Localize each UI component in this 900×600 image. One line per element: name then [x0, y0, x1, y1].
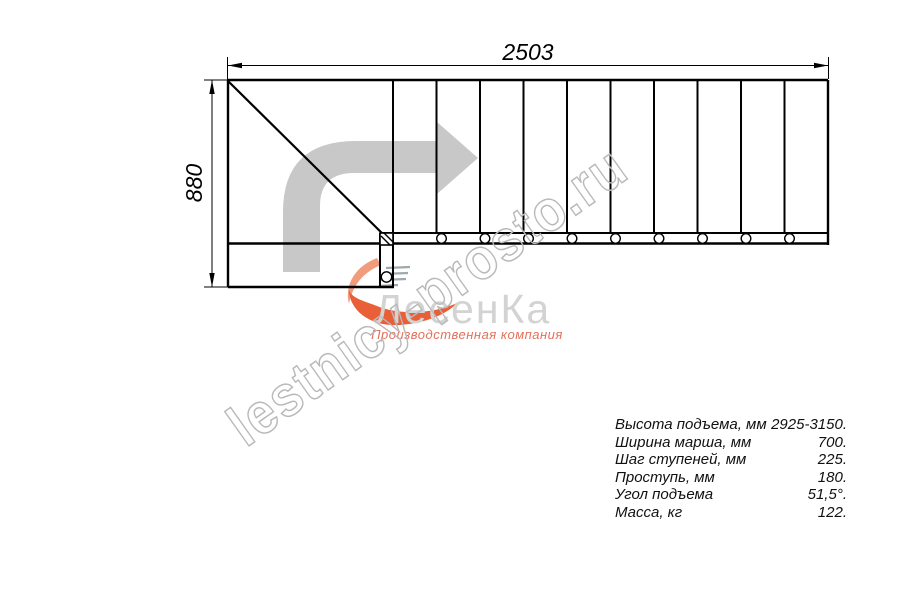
- dim-arrow-right: [814, 63, 828, 68]
- dimension-top-value: 2503: [501, 39, 553, 65]
- spec-label: Проступь, мм: [615, 469, 715, 487]
- spec-table: Высота подъема, мм 2925-3150. Ширина мар…: [615, 416, 847, 522]
- spec-row: Масса, кг 122.: [615, 504, 847, 522]
- spec-row: Ширина марша, мм 700.: [615, 434, 847, 452]
- spec-value: 700.: [818, 434, 847, 452]
- spec-value: 225.: [818, 451, 847, 469]
- spec-row: Угол подъема 51,5°.: [615, 486, 847, 504]
- spec-row: Высота подъема, мм 2925-3150.: [615, 416, 847, 434]
- watermark-text: lestnicy-prosto.ru: [216, 133, 639, 458]
- newel-baluster-circle: [381, 272, 391, 282]
- spec-value: 2925-3150.: [771, 416, 847, 434]
- spec-label: Высота подъема, мм: [615, 416, 767, 434]
- page-background: { "drawing": { "dim_top": "2503", "dim_l…: [0, 0, 900, 600]
- spec-row: Шаг ступеней, мм 225.: [615, 451, 847, 469]
- spec-value: 180.: [818, 469, 847, 487]
- spec-row: Проступь, мм 180.: [615, 469, 847, 487]
- spec-label: Угол подъема: [615, 486, 713, 504]
- dim-arrow-up: [209, 80, 214, 94]
- spec-label: Ширина марша, мм: [615, 434, 751, 452]
- dimension-top: 2503: [228, 39, 829, 79]
- dimension-left-value: 880: [181, 164, 207, 203]
- dim-arrow-left: [228, 63, 242, 68]
- spec-value: 122.: [818, 504, 847, 522]
- dim-arrow-down: [209, 273, 214, 287]
- dimension-left: 880: [181, 80, 228, 287]
- spec-value: 51,5°.: [808, 486, 847, 504]
- spec-label: Масса, кг: [615, 504, 682, 522]
- spec-label: Шаг ступеней, мм: [615, 451, 746, 469]
